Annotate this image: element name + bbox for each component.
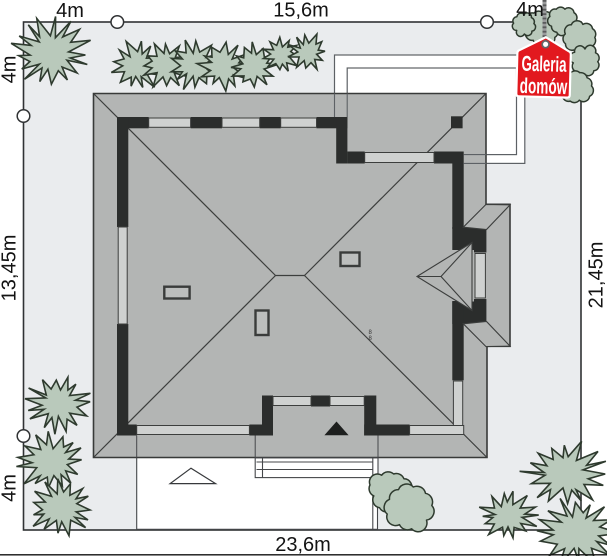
svg-text:23,6m: 23,6m (275, 534, 331, 556)
svg-text:13,45m: 13,45m (0, 235, 21, 302)
svg-text:4m: 4m (516, 0, 544, 21)
svg-text:Galeria: Galeria (521, 52, 567, 77)
svg-text:4m: 4m (56, 0, 84, 22)
svg-text:4m: 4m (0, 56, 21, 84)
svg-text:4m: 4m (0, 474, 21, 502)
svg-text:domów: domów (519, 74, 567, 99)
svg-text:21,45m: 21,45m (586, 242, 607, 309)
svg-text:15,6m: 15,6m (273, 0, 329, 22)
